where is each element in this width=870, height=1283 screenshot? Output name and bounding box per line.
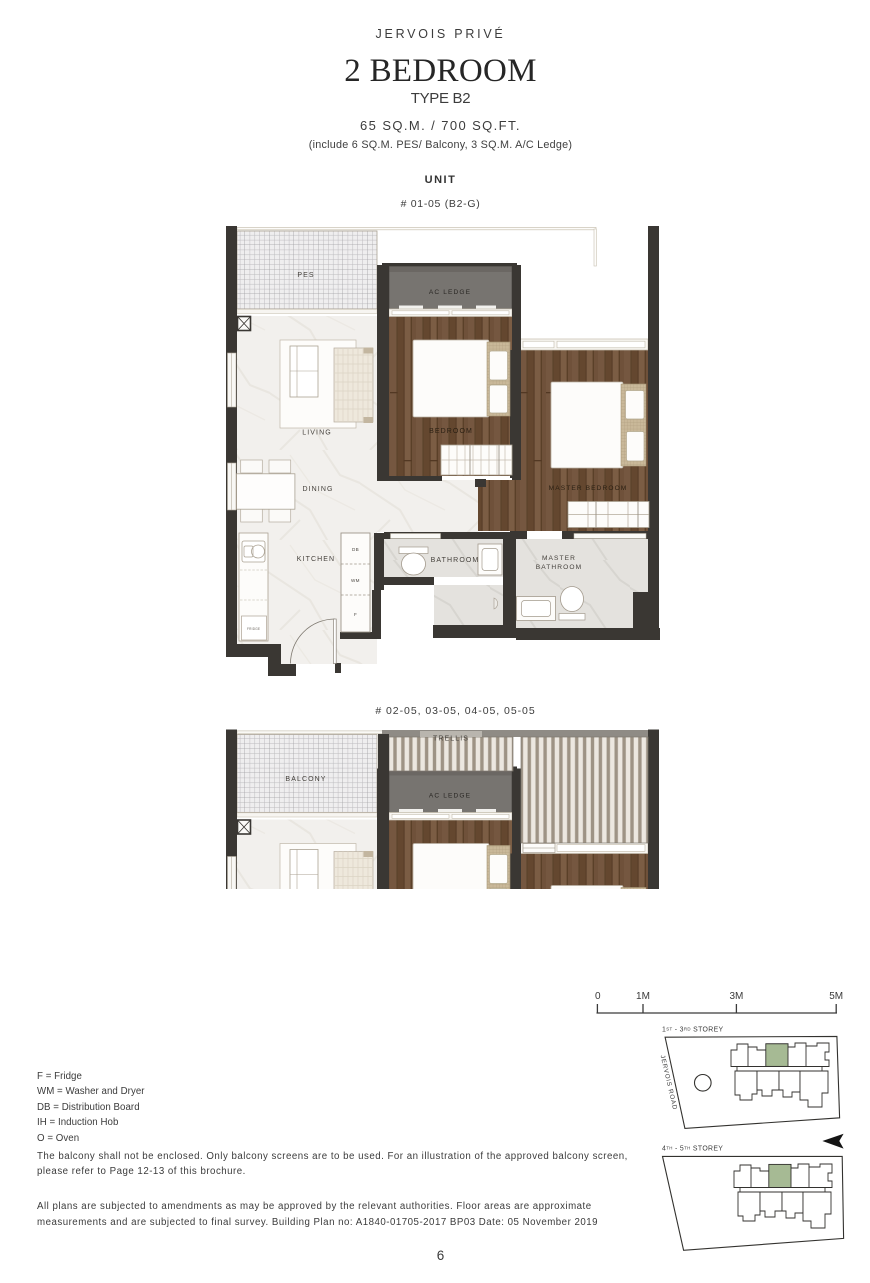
- svg-text:1M: 1M: [636, 991, 650, 1002]
- svg-text:0: 0: [595, 991, 601, 1002]
- svg-text:BALCONY: BALCONY: [285, 776, 326, 783]
- svg-text:PES: PES: [297, 272, 314, 279]
- svg-text:1ST - 3RD STOREY: 1ST - 3RD STOREY: [662, 1026, 724, 1033]
- svg-text:3M: 3M: [729, 991, 743, 1002]
- svg-text:4TH - 5TH STOREY: 4TH - 5TH STOREY: [662, 1145, 723, 1152]
- svg-text:TRELLIS: TRELLIS: [433, 736, 469, 743]
- svg-text:5M: 5M: [829, 991, 843, 1002]
